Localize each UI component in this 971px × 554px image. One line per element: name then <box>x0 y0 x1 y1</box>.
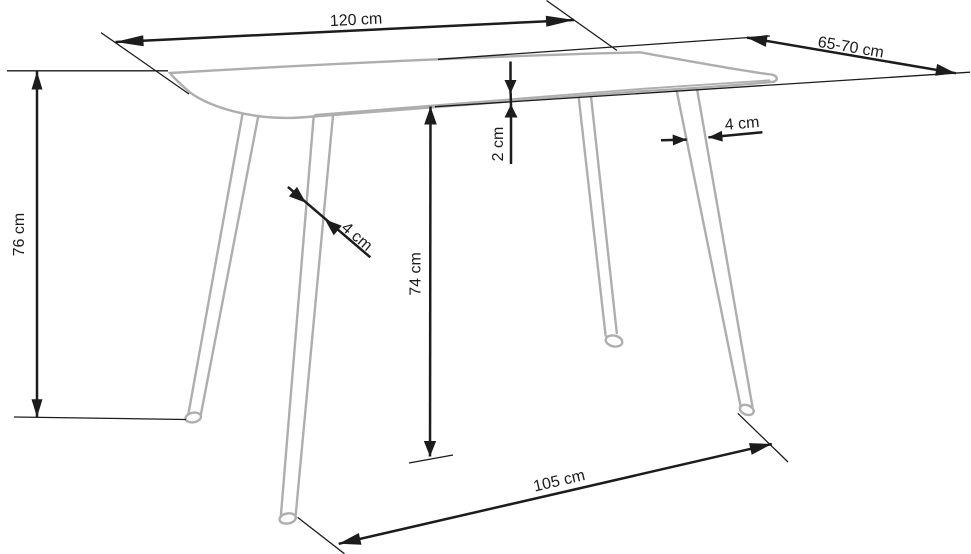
svg-text:76 cm: 76 cm <box>11 213 28 257</box>
svg-text:4 cm: 4 cm <box>724 114 760 134</box>
svg-text:4 cm: 4 cm <box>338 219 375 254</box>
svg-text:105 cm: 105 cm <box>532 467 587 495</box>
svg-text:65-70 cm: 65-70 cm <box>816 34 885 62</box>
svg-text:120 cm: 120 cm <box>329 11 382 31</box>
svg-text:74 cm: 74 cm <box>407 252 424 296</box>
svg-text:2 cm: 2 cm <box>490 127 507 162</box>
